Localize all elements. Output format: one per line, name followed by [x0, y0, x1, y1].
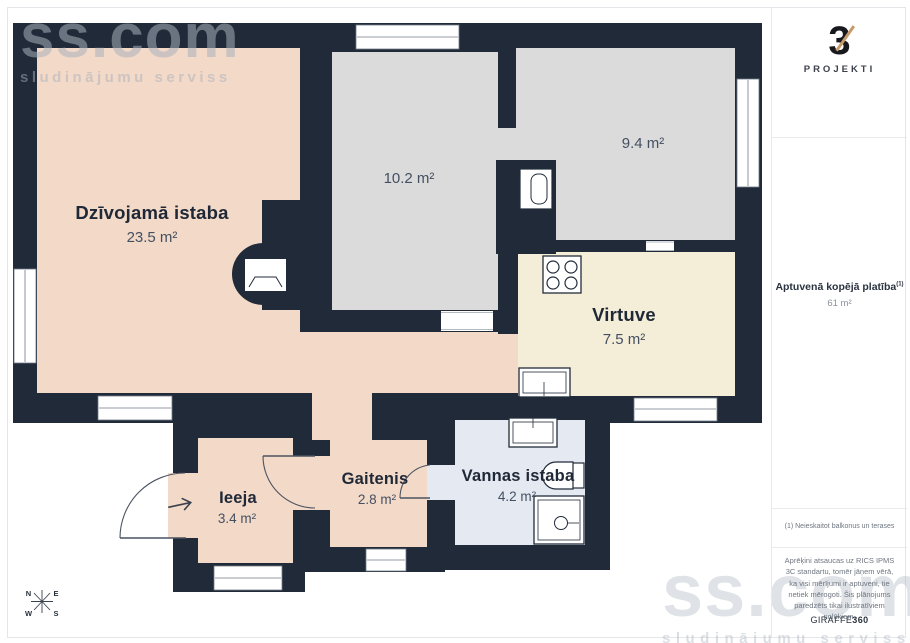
total-area-block: Aptuvenā kopējā platība(1) 61 m²	[772, 281, 907, 309]
window-room-b-right	[737, 79, 759, 187]
entrance-doorway	[168, 473, 198, 538]
entry-area: 3.4 m²	[218, 511, 257, 526]
sidebar: 3 PROJEKTI Aptuvenā kopējā platība(1) 61…	[771, 7, 907, 637]
projekti-logo: 3 PROJEKTI	[772, 21, 907, 75]
window-living-bottom	[98, 396, 172, 420]
toilet-alcove-icon	[520, 169, 552, 209]
entry-hallway-doorway	[293, 456, 330, 510]
sidebar-divider	[772, 508, 907, 509]
living-room-name: Dzīvojamā istaba	[75, 202, 229, 223]
fireplace-icon	[245, 259, 286, 291]
corridor-hallway-passage	[312, 393, 372, 440]
compass-north: N	[26, 589, 31, 598]
sidebar-divider	[772, 137, 907, 138]
window-room-a-top	[356, 25, 459, 49]
kitchen-name: Virtuve	[592, 304, 656, 325]
projekti-logo-wordmark: PROJEKTI	[772, 64, 907, 75]
compass-icon: N E W S	[25, 589, 59, 618]
disclaimer-text: Aprēķini atsaucas uz RICS IPMS 3C standa…	[781, 555, 898, 623]
corridor-floor	[300, 332, 518, 393]
room-a-b-opening	[498, 128, 516, 160]
washing-machine-icon	[509, 418, 557, 447]
window-entry-bottom	[214, 566, 282, 590]
compass-east: E	[53, 589, 58, 598]
footnote-text: (1) Neieskaitot balkonus un terases	[772, 523, 907, 530]
threshold-kitchen-room-b	[646, 241, 674, 251]
living-room-area: 23.5 m²	[127, 229, 178, 246]
floorplan-page: Dzīvojamā istaba 23.5 m² 10.2 m² 9.4 m² …	[0, 0, 910, 643]
sidebar-divider	[772, 547, 907, 548]
room-b-area: 9.4 m²	[622, 135, 665, 152]
wall-kitchen-left	[498, 214, 518, 334]
projekti-logo-numeral: 3	[828, 21, 850, 61]
giraffe360-suffix: 360	[852, 615, 868, 625]
total-area-label-text: Aptuvenā kopējā platība	[775, 281, 896, 293]
entry-name: Ieeja	[219, 489, 257, 507]
window-living-left	[14, 269, 36, 363]
room-a-area: 10.2 m²	[384, 170, 435, 187]
bathroom-area: 4.2 m²	[498, 489, 537, 504]
window-kitchen-bottom	[634, 398, 717, 421]
kitchen-sink-icon	[519, 368, 570, 397]
shower-icon	[534, 496, 584, 544]
kitchen-area: 7.5 m²	[603, 331, 646, 348]
logo-numeral-text: 3	[828, 19, 850, 63]
hallway-area: 2.8 m²	[358, 492, 397, 507]
stove-icon	[543, 256, 581, 293]
window-hallway-bottom	[366, 549, 406, 571]
total-area-label: Aptuvenā kopējā platība(1)	[772, 281, 907, 293]
compass-west: W	[25, 609, 33, 618]
bathroom-name: Vannas istaba	[462, 467, 575, 485]
compass-south: S	[53, 609, 58, 618]
giraffe360-name: GIRAFFE	[810, 615, 852, 625]
giraffe360-brand: GIRAFFE360	[772, 615, 907, 625]
wall-room-a-b	[498, 48, 516, 128]
hallway-name: Gaitenis	[342, 470, 409, 488]
threshold-room-a	[441, 311, 493, 331]
total-area-value: 61 m²	[772, 298, 907, 309]
bathroom-doorway	[427, 465, 455, 500]
total-area-footnote-ref: (1)	[896, 282, 903, 288]
